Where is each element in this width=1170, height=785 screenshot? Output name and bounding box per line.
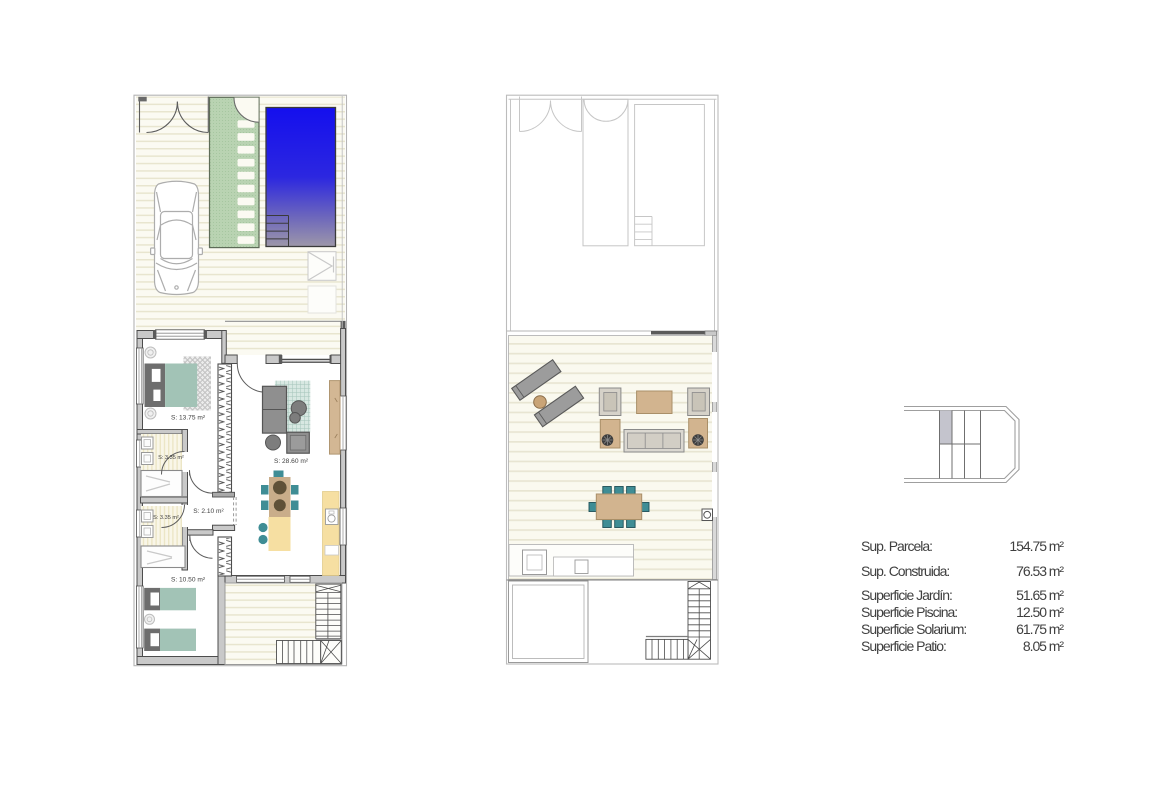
svg-text:51.65 m²: 51.65 m² <box>1016 587 1064 603</box>
svg-text:Sup. Construida:: Sup. Construida: <box>861 563 949 579</box>
svg-text:154.75 m²: 154.75 m² <box>1009 538 1064 554</box>
svg-text:76.53 m²: 76.53 m² <box>1016 563 1064 579</box>
svg-text:8.05 m²: 8.05 m² <box>1023 638 1064 654</box>
svg-text:S: 13.75 m²: S: 13.75 m² <box>171 415 206 422</box>
svg-text:Superficie Piscina:: Superficie Piscina: <box>861 604 957 620</box>
svg-text:Superficie Jardín:: Superficie Jardín: <box>861 587 952 603</box>
svg-text:S: 28.60 m²: S: 28.60 m² <box>274 458 309 465</box>
svg-text:12.50 m²: 12.50 m² <box>1016 604 1064 620</box>
svg-text:S: 2.10 m²: S: 2.10 m² <box>193 508 224 515</box>
svg-text:S: 10.50 m²: S: 10.50 m² <box>171 577 206 584</box>
svg-text:Sup. Parcela:: Sup. Parcela: <box>861 538 932 554</box>
svg-text:Superficie Patio:: Superficie Patio: <box>861 638 946 654</box>
svg-text:61.75 m²: 61.75 m² <box>1016 621 1064 637</box>
svg-text:S: 3.35 m²: S: 3.35 m² <box>153 515 179 521</box>
svg-text:Superficie Solarium:: Superficie Solarium: <box>861 621 966 637</box>
svg-text:S: 3.35 m²: S: 3.35 m² <box>158 455 184 461</box>
